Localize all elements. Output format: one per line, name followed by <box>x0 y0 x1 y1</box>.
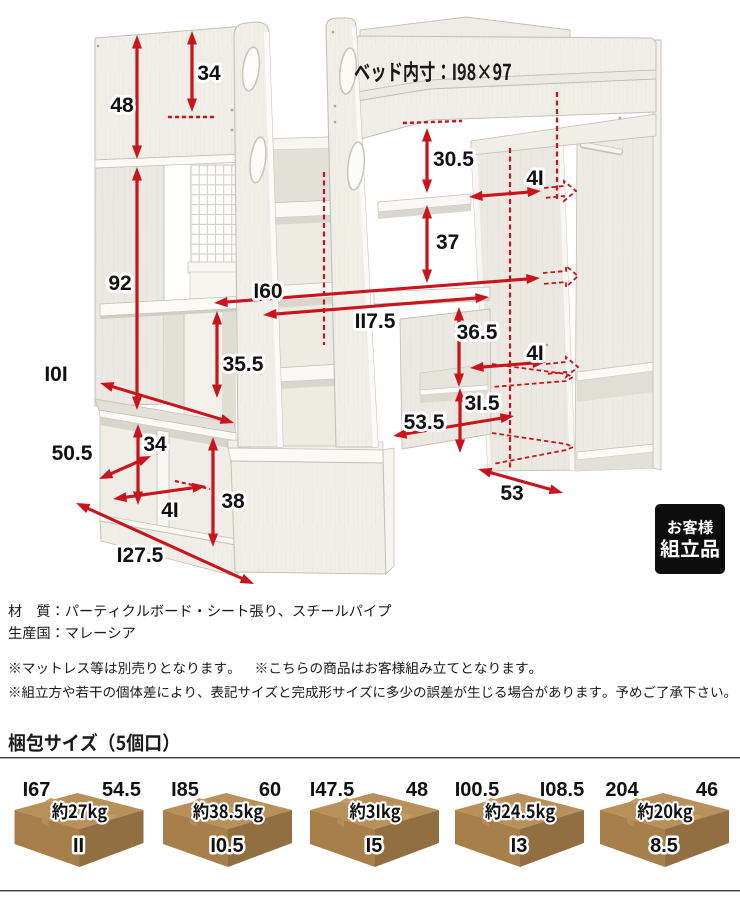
svg-text:30.5: 30.5 <box>433 148 474 171</box>
svg-text:35.5: 35.5 <box>223 353 264 376</box>
svg-text:II7.5: II7.5 <box>355 310 396 333</box>
svg-text:34: 34 <box>197 62 221 85</box>
svg-text:4I: 4I <box>526 167 544 190</box>
svg-text:I27.5: I27.5 <box>117 544 164 567</box>
svg-text:204: 204 <box>605 779 639 801</box>
svg-text:48: 48 <box>406 779 428 801</box>
svg-text:34: 34 <box>143 433 167 456</box>
svg-text:I0I: I0I <box>44 363 67 386</box>
svg-text:50.5: 50.5 <box>52 442 93 465</box>
svg-text:92: 92 <box>108 272 131 295</box>
svg-text:36.5: 36.5 <box>457 321 498 344</box>
svg-text:I00.5: I00.5 <box>455 779 499 801</box>
svg-text:54.5: 54.5 <box>102 779 141 801</box>
svg-text:II: II <box>73 835 84 857</box>
svg-text:I5: I5 <box>366 835 383 857</box>
svg-text:48: 48 <box>110 94 134 117</box>
svg-text:46: 46 <box>696 779 718 801</box>
svg-text:3I.5: 3I.5 <box>464 392 499 415</box>
svg-text:53: 53 <box>500 482 523 505</box>
svg-text:8.5: 8.5 <box>650 835 678 857</box>
svg-text:I60: I60 <box>253 280 282 303</box>
svg-text:I47.5: I47.5 <box>310 779 354 801</box>
svg-text:4I: 4I <box>526 342 544 365</box>
svg-text:4I: 4I <box>161 499 179 522</box>
svg-text:I08.5: I08.5 <box>540 779 584 801</box>
svg-text:I67: I67 <box>23 779 51 801</box>
svg-text:60: 60 <box>259 779 281 801</box>
svg-text:I85: I85 <box>171 779 199 801</box>
svg-text:37: 37 <box>436 231 459 254</box>
svg-text:I3: I3 <box>511 835 528 857</box>
svg-text:38: 38 <box>221 490 245 513</box>
svg-text:I0.5: I0.5 <box>210 835 243 857</box>
svg-text:53.5: 53.5 <box>404 411 445 434</box>
